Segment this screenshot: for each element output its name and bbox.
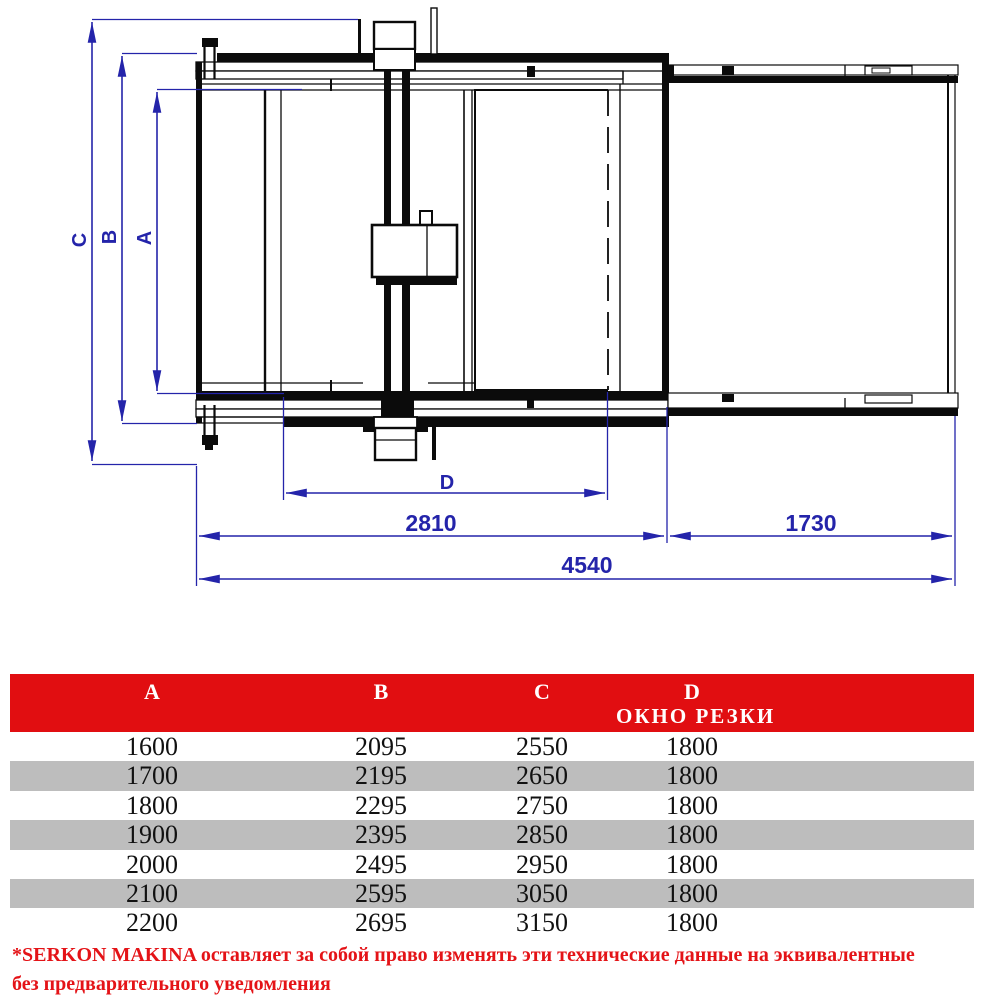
header-col-d-subtitle: ОКНО РЕЗКИ (616, 704, 768, 729)
header-col-d-label: D (684, 679, 700, 704)
header-col-b-label: B (374, 679, 389, 704)
cell-a: 2000 (10, 850, 294, 879)
cell-c: 3150 (468, 908, 616, 937)
dim-label-c: C (69, 233, 91, 247)
top-motor-box (374, 22, 415, 70)
dim-label-a: A (134, 231, 156, 245)
dim-label-b: B (99, 230, 121, 244)
header-col-a: A (10, 674, 294, 732)
cell-filler (768, 850, 974, 879)
footer-disclaimer-line2: без предварительного уведомления (12, 970, 962, 999)
cell-b: 2295 (294, 791, 468, 820)
cell-c: 2550 (468, 732, 616, 761)
cell-filler (768, 820, 974, 849)
dimension-1730 (670, 416, 955, 586)
cell-b: 2495 (294, 850, 468, 879)
spec-row: 1700 2195 2650 1800 (10, 761, 974, 790)
cell-b: 2095 (294, 732, 468, 761)
spec-row: 2000 2495 2950 1800 (10, 850, 974, 879)
cell-filler (768, 791, 974, 820)
machine-body (196, 8, 958, 460)
cell-d: 1800 (616, 732, 768, 761)
spec-row: 1600 2095 2550 1800 (10, 732, 974, 761)
header-col-b: B (294, 674, 468, 732)
spec-row: 2200 2695 3150 1800 (10, 908, 974, 937)
cell-filler (768, 761, 974, 790)
dimension-a (157, 90, 302, 394)
extension-table (668, 65, 958, 416)
main-table-right-frame (662, 53, 669, 427)
cell-d: 1800 (616, 820, 768, 849)
main-table-top-rail (196, 53, 668, 90)
header-col-a-label: A (144, 679, 160, 704)
dim-value-4540: 4540 (561, 552, 612, 578)
header-filler (768, 674, 974, 732)
spec-row: 2100 2595 3050 1800 (10, 879, 974, 908)
cell-a: 2200 (10, 908, 294, 937)
cell-a: 1600 (10, 732, 294, 761)
cell-a: 1900 (10, 820, 294, 849)
cell-b: 2695 (294, 908, 468, 937)
cell-d: 1800 (616, 761, 768, 790)
header-col-d: D ОКНО РЕЗКИ (616, 674, 768, 732)
bottom-motor-box (363, 417, 436, 460)
footer-disclaimer-line1: *SERKON MAKINA оставляет за собой право … (12, 941, 962, 970)
cell-c: 2750 (468, 791, 616, 820)
cell-c: 3050 (468, 879, 616, 908)
spec-table: A B C D ОКНО РЕЗКИ 1600 2095 2550 1800 1… (10, 674, 974, 938)
cell-d: 1800 (616, 850, 768, 879)
dim-value-1730: 1730 (785, 510, 836, 536)
cell-filler (768, 879, 974, 908)
cell-a: 1800 (10, 791, 294, 820)
page: C B A D 2810 1730 4540 A B C D ОКНО РЕЗК… (0, 0, 1000, 1003)
spec-row: 1800 2295 2750 1800 (10, 791, 974, 820)
cell-b: 2595 (294, 879, 468, 908)
cell-d: 1800 (616, 908, 768, 937)
dim-value-2810: 2810 (405, 510, 456, 536)
machine-drawing-svg: C B A D 2810 1730 4540 (0, 0, 1000, 640)
cell-c: 2650 (468, 761, 616, 790)
cell-filler (768, 908, 974, 937)
cell-b: 2195 (294, 761, 468, 790)
cell-a: 1700 (10, 761, 294, 790)
machine-drawing: C B A D 2810 1730 4540 (0, 0, 1000, 640)
spec-row: 1900 2395 2850 1800 (10, 820, 974, 849)
cell-c: 2950 (468, 850, 616, 879)
cell-filler (768, 732, 974, 761)
footer-disclaimer: *SERKON MAKINA оставляет за собой право … (12, 941, 962, 999)
cutting-window (475, 90, 608, 390)
cell-a: 2100 (10, 879, 294, 908)
cell-b: 2395 (294, 820, 468, 849)
main-table-left-frame (196, 62, 202, 423)
cell-d: 1800 (616, 879, 768, 908)
header-col-c: C (468, 674, 616, 732)
header-col-c-label: C (534, 679, 550, 704)
dim-label-d: D (440, 472, 454, 494)
spec-table-header: A B C D ОКНО РЕЗКИ (10, 674, 974, 732)
cell-d: 1800 (616, 791, 768, 820)
cell-c: 2850 (468, 820, 616, 849)
